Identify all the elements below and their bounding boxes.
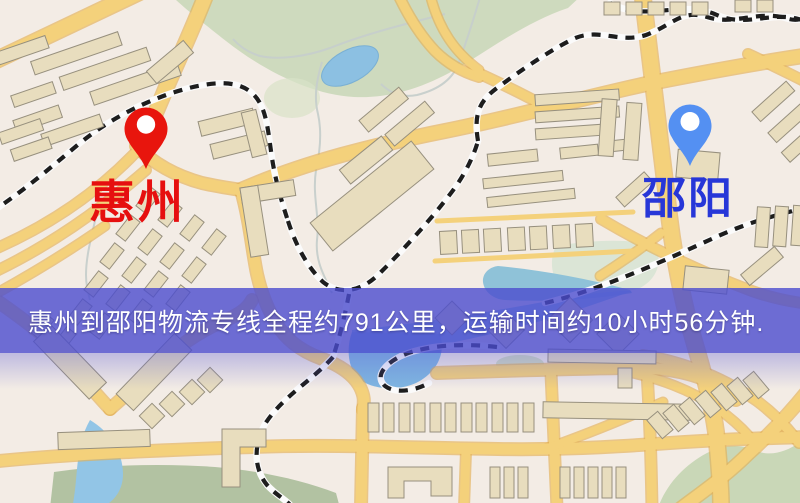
origin-city-label: 惠州	[89, 179, 185, 225]
route-info-text: 惠州到邵阳物流专线全程约791公里，运输时间约10小时56分钟.	[28, 303, 764, 339]
route-info-banner: 惠州到邵阳物流专线全程约791公里，运输时间约10小时56分钟.	[0, 288, 800, 353]
destination-pin-hole	[681, 112, 700, 131]
origin-pin-hole	[137, 115, 155, 133]
logistics-route-map: 惠州 邵阳 惠州到邵阳物流专线全程约791公里，运输时间约10小时56分钟.	[0, 0, 800, 503]
destination-city-label: 邵阳	[642, 177, 734, 221]
map-canvas	[0, 0, 800, 503]
